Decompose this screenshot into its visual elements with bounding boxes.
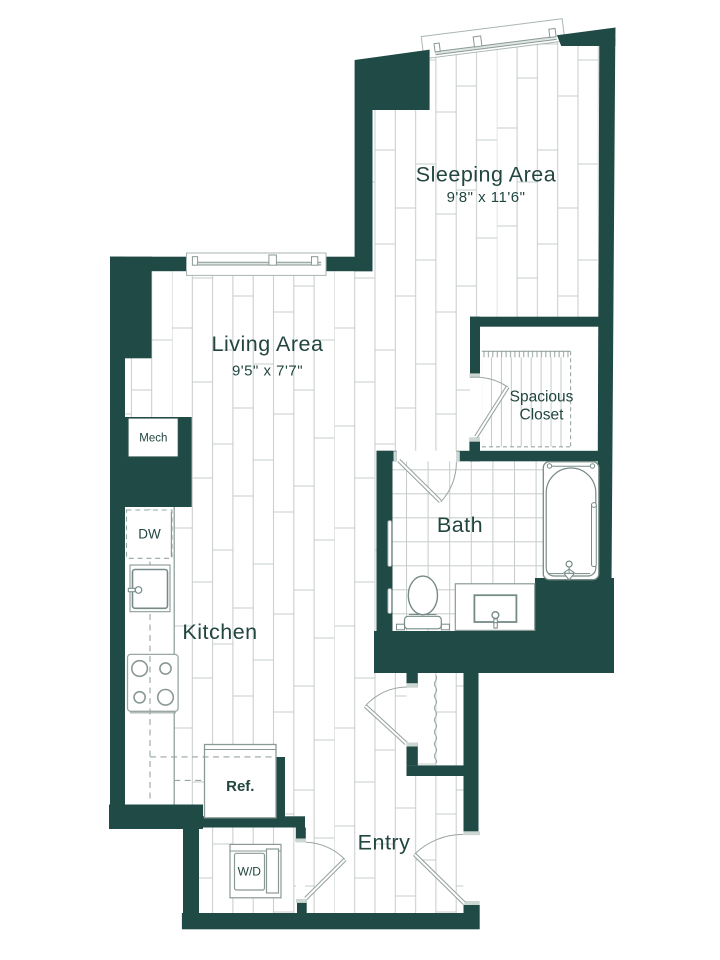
- svg-text:W/D: W/D: [238, 865, 262, 879]
- svg-text:Living Area: Living Area: [212, 332, 324, 356]
- svg-text:Sleeping Area: Sleeping Area: [416, 163, 556, 187]
- svg-text:Mech: Mech: [139, 433, 167, 445]
- svg-text:9'5" x 7'7": 9'5" x 7'7": [232, 362, 303, 379]
- svg-text:Bath: Bath: [437, 513, 483, 537]
- svg-text:Entry: Entry: [358, 831, 411, 855]
- svg-text:Ref.: Ref.: [226, 778, 254, 795]
- svg-text:Spacious: Spacious: [510, 389, 574, 406]
- svg-text:9'8" x 11'6": 9'8" x 11'6": [447, 189, 526, 206]
- svg-text:DW: DW: [138, 527, 161, 542]
- svg-text:Closet: Closet: [520, 407, 565, 424]
- svg-text:Kitchen: Kitchen: [182, 620, 257, 644]
